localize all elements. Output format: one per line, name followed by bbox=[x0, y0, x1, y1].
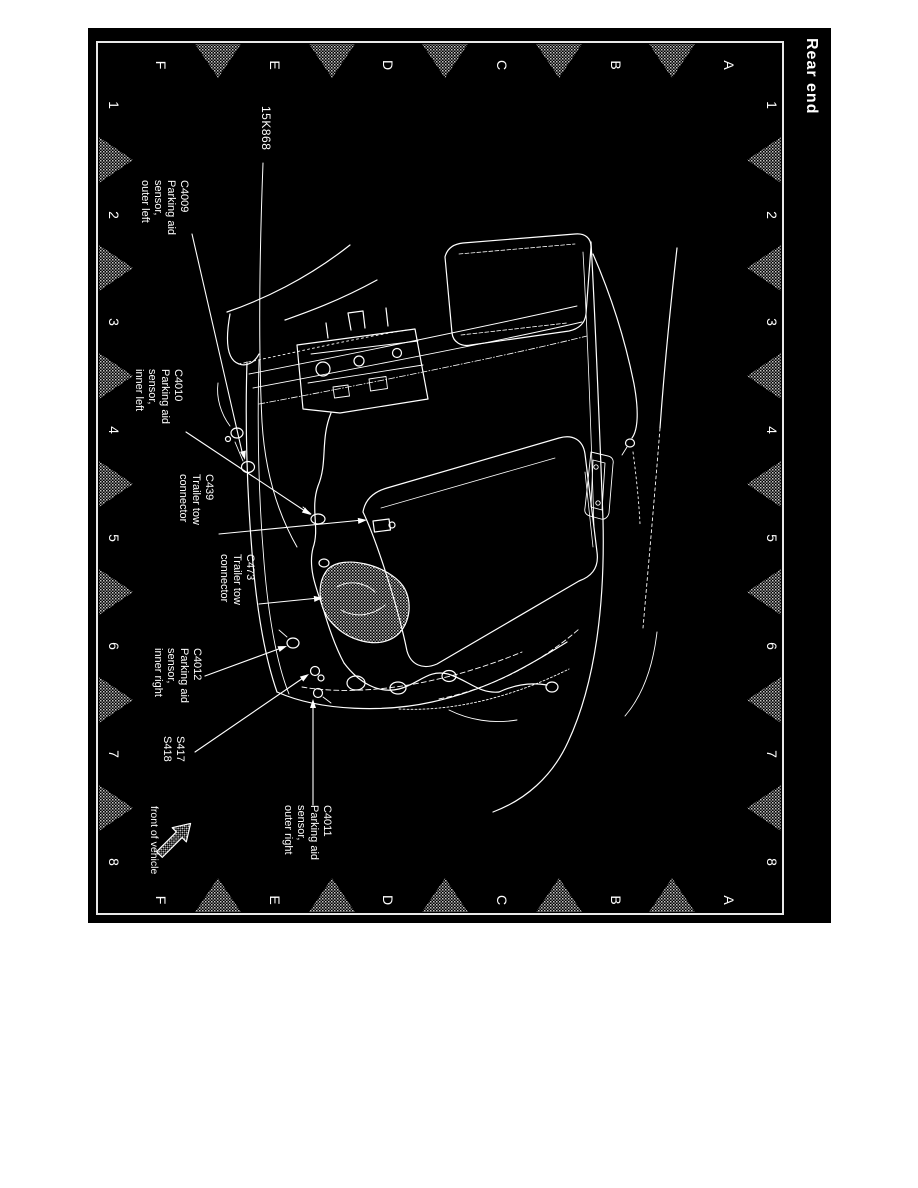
grid-letter-bottom-f: F bbox=[151, 890, 171, 910]
grid-number-right-4: 4 bbox=[762, 420, 782, 440]
grid-number-right-7: 7 bbox=[762, 744, 782, 764]
grid-number-left-3: 3 bbox=[104, 312, 124, 332]
d-pillar-line bbox=[660, 248, 677, 428]
vehicle-body-drawing bbox=[152, 163, 677, 862]
grid-letter-top-e: E bbox=[265, 55, 285, 75]
grid-letter-bottom-b: B bbox=[606, 890, 626, 910]
grid-letter-top-c: C bbox=[492, 55, 512, 75]
manual-page: { "page": { "title": "Rear end" }, "grid… bbox=[0, 0, 918, 1188]
arrow-c4009 bbox=[192, 234, 243, 456]
callout-c4009: C4009 Parking aid sensor, outer left bbox=[136, 180, 190, 264]
callout-c473: C473 Trailer tow connector bbox=[215, 554, 256, 634]
grid-number-right-8: 8 bbox=[762, 852, 782, 872]
arrow-c4012 bbox=[205, 647, 284, 676]
connector-c4011 bbox=[314, 689, 323, 698]
callout-s417-s418: S417 S418 bbox=[158, 736, 186, 782]
grid-number-left-5: 5 bbox=[104, 528, 124, 548]
grid-number-right-2: 2 bbox=[762, 205, 782, 225]
grid-letter-top-f: F bbox=[151, 55, 171, 75]
grid-number-right-5: 5 bbox=[762, 528, 782, 548]
arrow-s417 bbox=[195, 676, 306, 752]
grid-number-left-4: 4 bbox=[104, 420, 124, 440]
liftgate-wire bbox=[593, 254, 640, 524]
diagram-canvas: Rear end F E D C B A F E D C B A 1 2 3 4… bbox=[88, 28, 831, 923]
callout-c4010: C4010 Parking aid sensor, inner left bbox=[130, 369, 184, 449]
grid-letter-top-d: D bbox=[378, 55, 398, 75]
grid-number-left-8: 8 bbox=[104, 852, 124, 872]
grid-letter-bottom-c: C bbox=[492, 890, 512, 910]
callout-c4011: C4011 Parking aid sensor, outer right bbox=[279, 805, 333, 885]
grid-letter-top-b: B bbox=[606, 55, 626, 75]
callout-part-number: 15K868 bbox=[256, 106, 272, 170]
page-title: Rear end bbox=[800, 38, 822, 122]
grid-number-left-7: 7 bbox=[104, 744, 124, 764]
grid-letter-bottom-a: A bbox=[719, 890, 739, 910]
grid-letter-top-a: A bbox=[719, 55, 739, 75]
connector-c439 bbox=[373, 519, 395, 532]
grid-number-left-1: 1 bbox=[104, 95, 124, 115]
grid-letter-bottom-d: D bbox=[378, 890, 398, 910]
connector-c4012 bbox=[287, 638, 299, 648]
grid-number-right-6: 6 bbox=[762, 636, 782, 656]
arrow-c439 bbox=[219, 520, 363, 534]
callout-c4012: C4012 Parking aid sensor, inner right bbox=[149, 648, 203, 728]
splice-s417-s418 bbox=[311, 667, 320, 676]
grid-number-right-3: 3 bbox=[762, 312, 782, 332]
connector-c473 bbox=[320, 562, 409, 643]
grid-letter-bottom-e: E bbox=[265, 890, 285, 910]
callout-c439: C439 Trailer tow connector bbox=[174, 474, 215, 552]
grid-number-left-2: 2 bbox=[104, 205, 124, 225]
grid-number-right-1: 1 bbox=[762, 95, 782, 115]
front-of-vehicle-note: front of vehicle bbox=[146, 806, 160, 886]
grid-number-left-6: 6 bbox=[104, 636, 124, 656]
connector-c4010 bbox=[311, 514, 325, 524]
part-number-leader bbox=[260, 163, 297, 547]
